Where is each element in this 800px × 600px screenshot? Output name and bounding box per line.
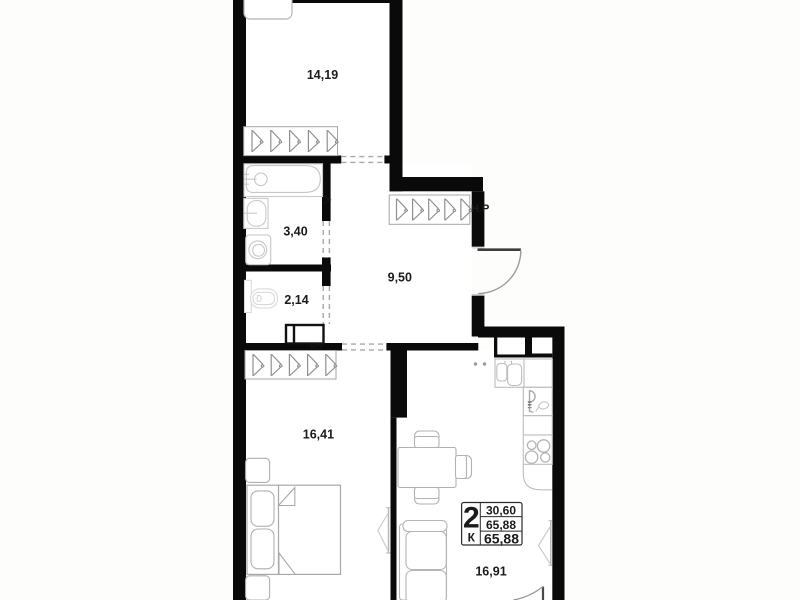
svg-text:14,19: 14,19 — [307, 68, 338, 82]
svg-text:9,50: 9,50 — [388, 270, 412, 284]
svg-text:30,60: 30,60 — [486, 504, 516, 518]
svg-text:Н.Р: Н.Р — [471, 203, 489, 215]
svg-text:16,91: 16,91 — [475, 565, 506, 579]
svg-text:2,14: 2,14 — [284, 293, 308, 307]
svg-text:К: К — [468, 531, 476, 545]
svg-text:3,40: 3,40 — [283, 225, 307, 239]
svg-text:65,88: 65,88 — [484, 531, 519, 547]
svg-text:16,41: 16,41 — [303, 428, 334, 442]
